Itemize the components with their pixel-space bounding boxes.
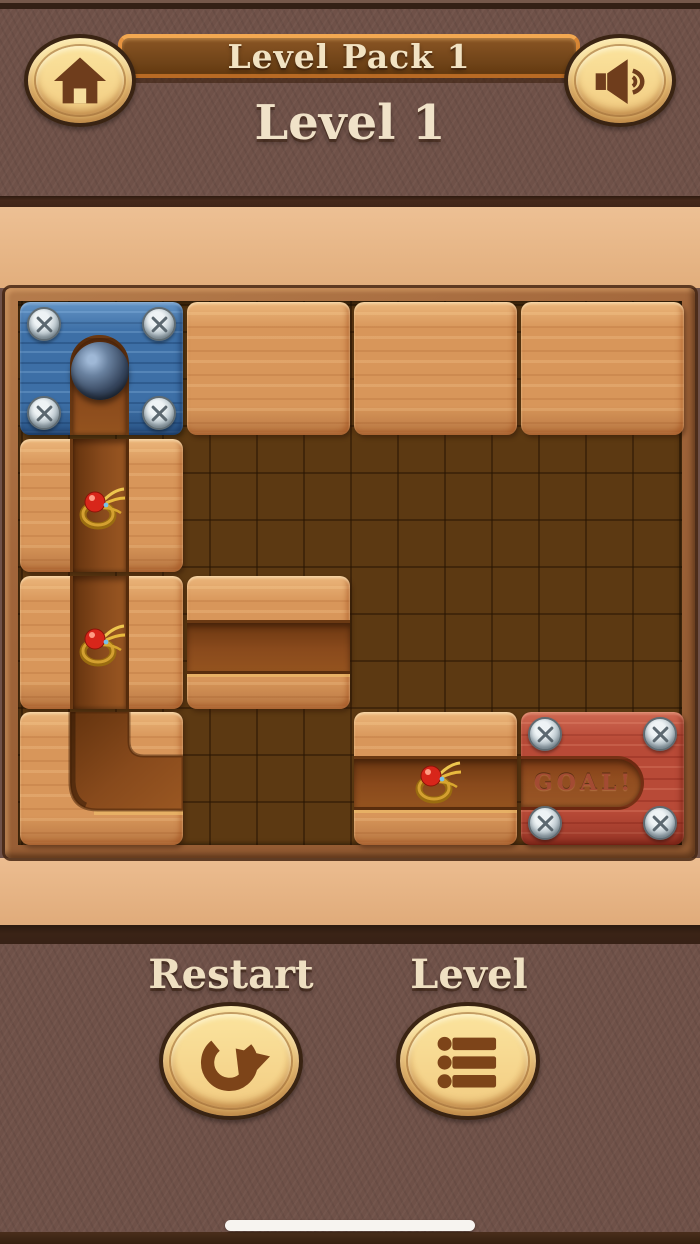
header-divider	[0, 196, 700, 207]
level-pack-banner: Level Pack 1	[118, 34, 580, 78]
bottom-edge-strip	[0, 1232, 700, 1244]
home-icon	[49, 50, 111, 112]
footer	[0, 944, 700, 1232]
gem-ring-icon	[410, 756, 462, 808]
footer-divider	[0, 925, 700, 944]
ball	[71, 342, 129, 400]
level-pack-label: Level Pack 1	[227, 37, 470, 76]
tile-pipe-elbow[interactable]	[20, 712, 183, 845]
screw-icon	[142, 396, 176, 430]
screw-icon	[528, 717, 562, 751]
tile-pipe-horizontal[interactable]	[187, 576, 350, 709]
goal-label: GOAL!	[521, 770, 641, 796]
restart-label: Restart	[131, 951, 331, 991]
game-board-grid: GOAL!	[18, 301, 682, 845]
level-select-button[interactable]	[396, 1002, 540, 1120]
tile-pipe-vertical[interactable]	[20, 576, 183, 709]
restart-arrow-icon	[192, 1022, 270, 1100]
home-indicator-bar[interactable]	[225, 1220, 475, 1231]
screw-icon	[643, 717, 677, 751]
goal-channel: GOAL!	[521, 756, 644, 810]
level-label: Level	[369, 951, 569, 991]
tile-pipe-horizontal[interactable]	[354, 712, 517, 845]
tan-band-top	[0, 207, 700, 288]
tan-band-bottom	[0, 858, 700, 925]
top-edge-strip	[0, 0, 700, 9]
screw-icon	[142, 307, 176, 341]
tile-pipe-vertical[interactable]	[20, 439, 183, 572]
screw-icon	[643, 806, 677, 840]
tile-goal: GOAL!	[521, 712, 684, 845]
tile-wood-block[interactable]	[187, 302, 350, 435]
level-list-icon	[429, 1022, 507, 1100]
pipe-channel	[187, 620, 350, 674]
game-board-frame: GOAL!	[5, 288, 695, 858]
tile-wood-block[interactable]	[521, 302, 684, 435]
tile-wood-block[interactable]	[354, 302, 517, 435]
header: Level Pack 1 Level 1	[0, 9, 700, 196]
screw-icon	[27, 307, 61, 341]
restart-button[interactable]	[159, 1002, 303, 1120]
pipe-elbow-channel	[20, 712, 183, 845]
screw-icon	[27, 396, 61, 430]
gem-ring-icon	[74, 619, 126, 671]
tile-ball-start	[20, 302, 183, 435]
screw-icon	[528, 806, 562, 840]
gem-ring-icon	[74, 482, 126, 534]
speaker-icon	[588, 49, 652, 113]
